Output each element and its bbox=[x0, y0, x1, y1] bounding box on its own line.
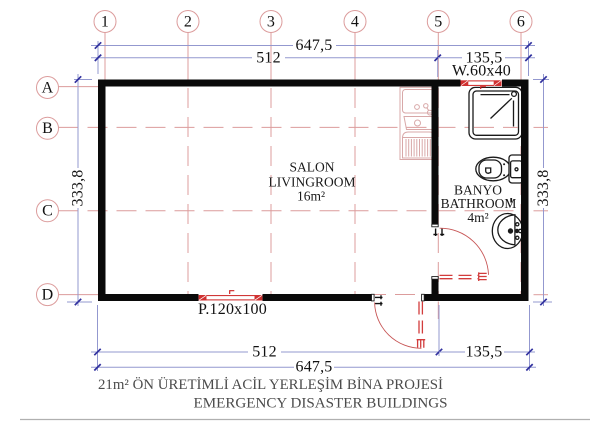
svg-text:6: 6 bbox=[517, 14, 525, 31]
svg-text:333,8: 333,8 bbox=[70, 170, 87, 207]
svg-text:21m² ÖN ÜRETİMLİ ACİL YERLEŞİM: 21m² ÖN ÜRETİMLİ ACİL YERLEŞİM BİNA PROJ… bbox=[98, 376, 443, 393]
svg-text:5: 5 bbox=[434, 14, 442, 31]
svg-text:4m²: 4m² bbox=[467, 210, 488, 225]
svg-text:A: A bbox=[42, 79, 54, 96]
svg-text:512: 512 bbox=[252, 344, 277, 361]
svg-text:2: 2 bbox=[184, 14, 192, 31]
svg-text:512: 512 bbox=[256, 50, 281, 67]
svg-text:W.60x40: W.60x40 bbox=[452, 63, 511, 80]
svg-text:647,5: 647,5 bbox=[296, 37, 333, 54]
svg-text:C: C bbox=[42, 203, 53, 220]
svg-text:135,5: 135,5 bbox=[466, 343, 503, 360]
svg-text:3: 3 bbox=[267, 14, 275, 31]
svg-text:B: B bbox=[42, 120, 53, 137]
svg-text:1: 1 bbox=[101, 14, 109, 31]
svg-text:4: 4 bbox=[351, 14, 359, 31]
svg-text:EMERGENCY DISASTER BUILDINGS: EMERGENCY DISASTER BUILDINGS bbox=[194, 396, 448, 412]
svg-text:SALON: SALON bbox=[289, 160, 334, 175]
svg-text:P.120x100: P.120x100 bbox=[198, 301, 267, 318]
svg-text:LIVINGROOM: LIVINGROOM bbox=[269, 175, 356, 190]
svg-text:333,8: 333,8 bbox=[535, 170, 552, 207]
svg-text:D: D bbox=[42, 286, 54, 303]
svg-text:BATHROOM: BATHROOM bbox=[441, 196, 517, 211]
svg-text:647,5: 647,5 bbox=[296, 359, 333, 376]
svg-text:16m²: 16m² bbox=[297, 189, 325, 204]
